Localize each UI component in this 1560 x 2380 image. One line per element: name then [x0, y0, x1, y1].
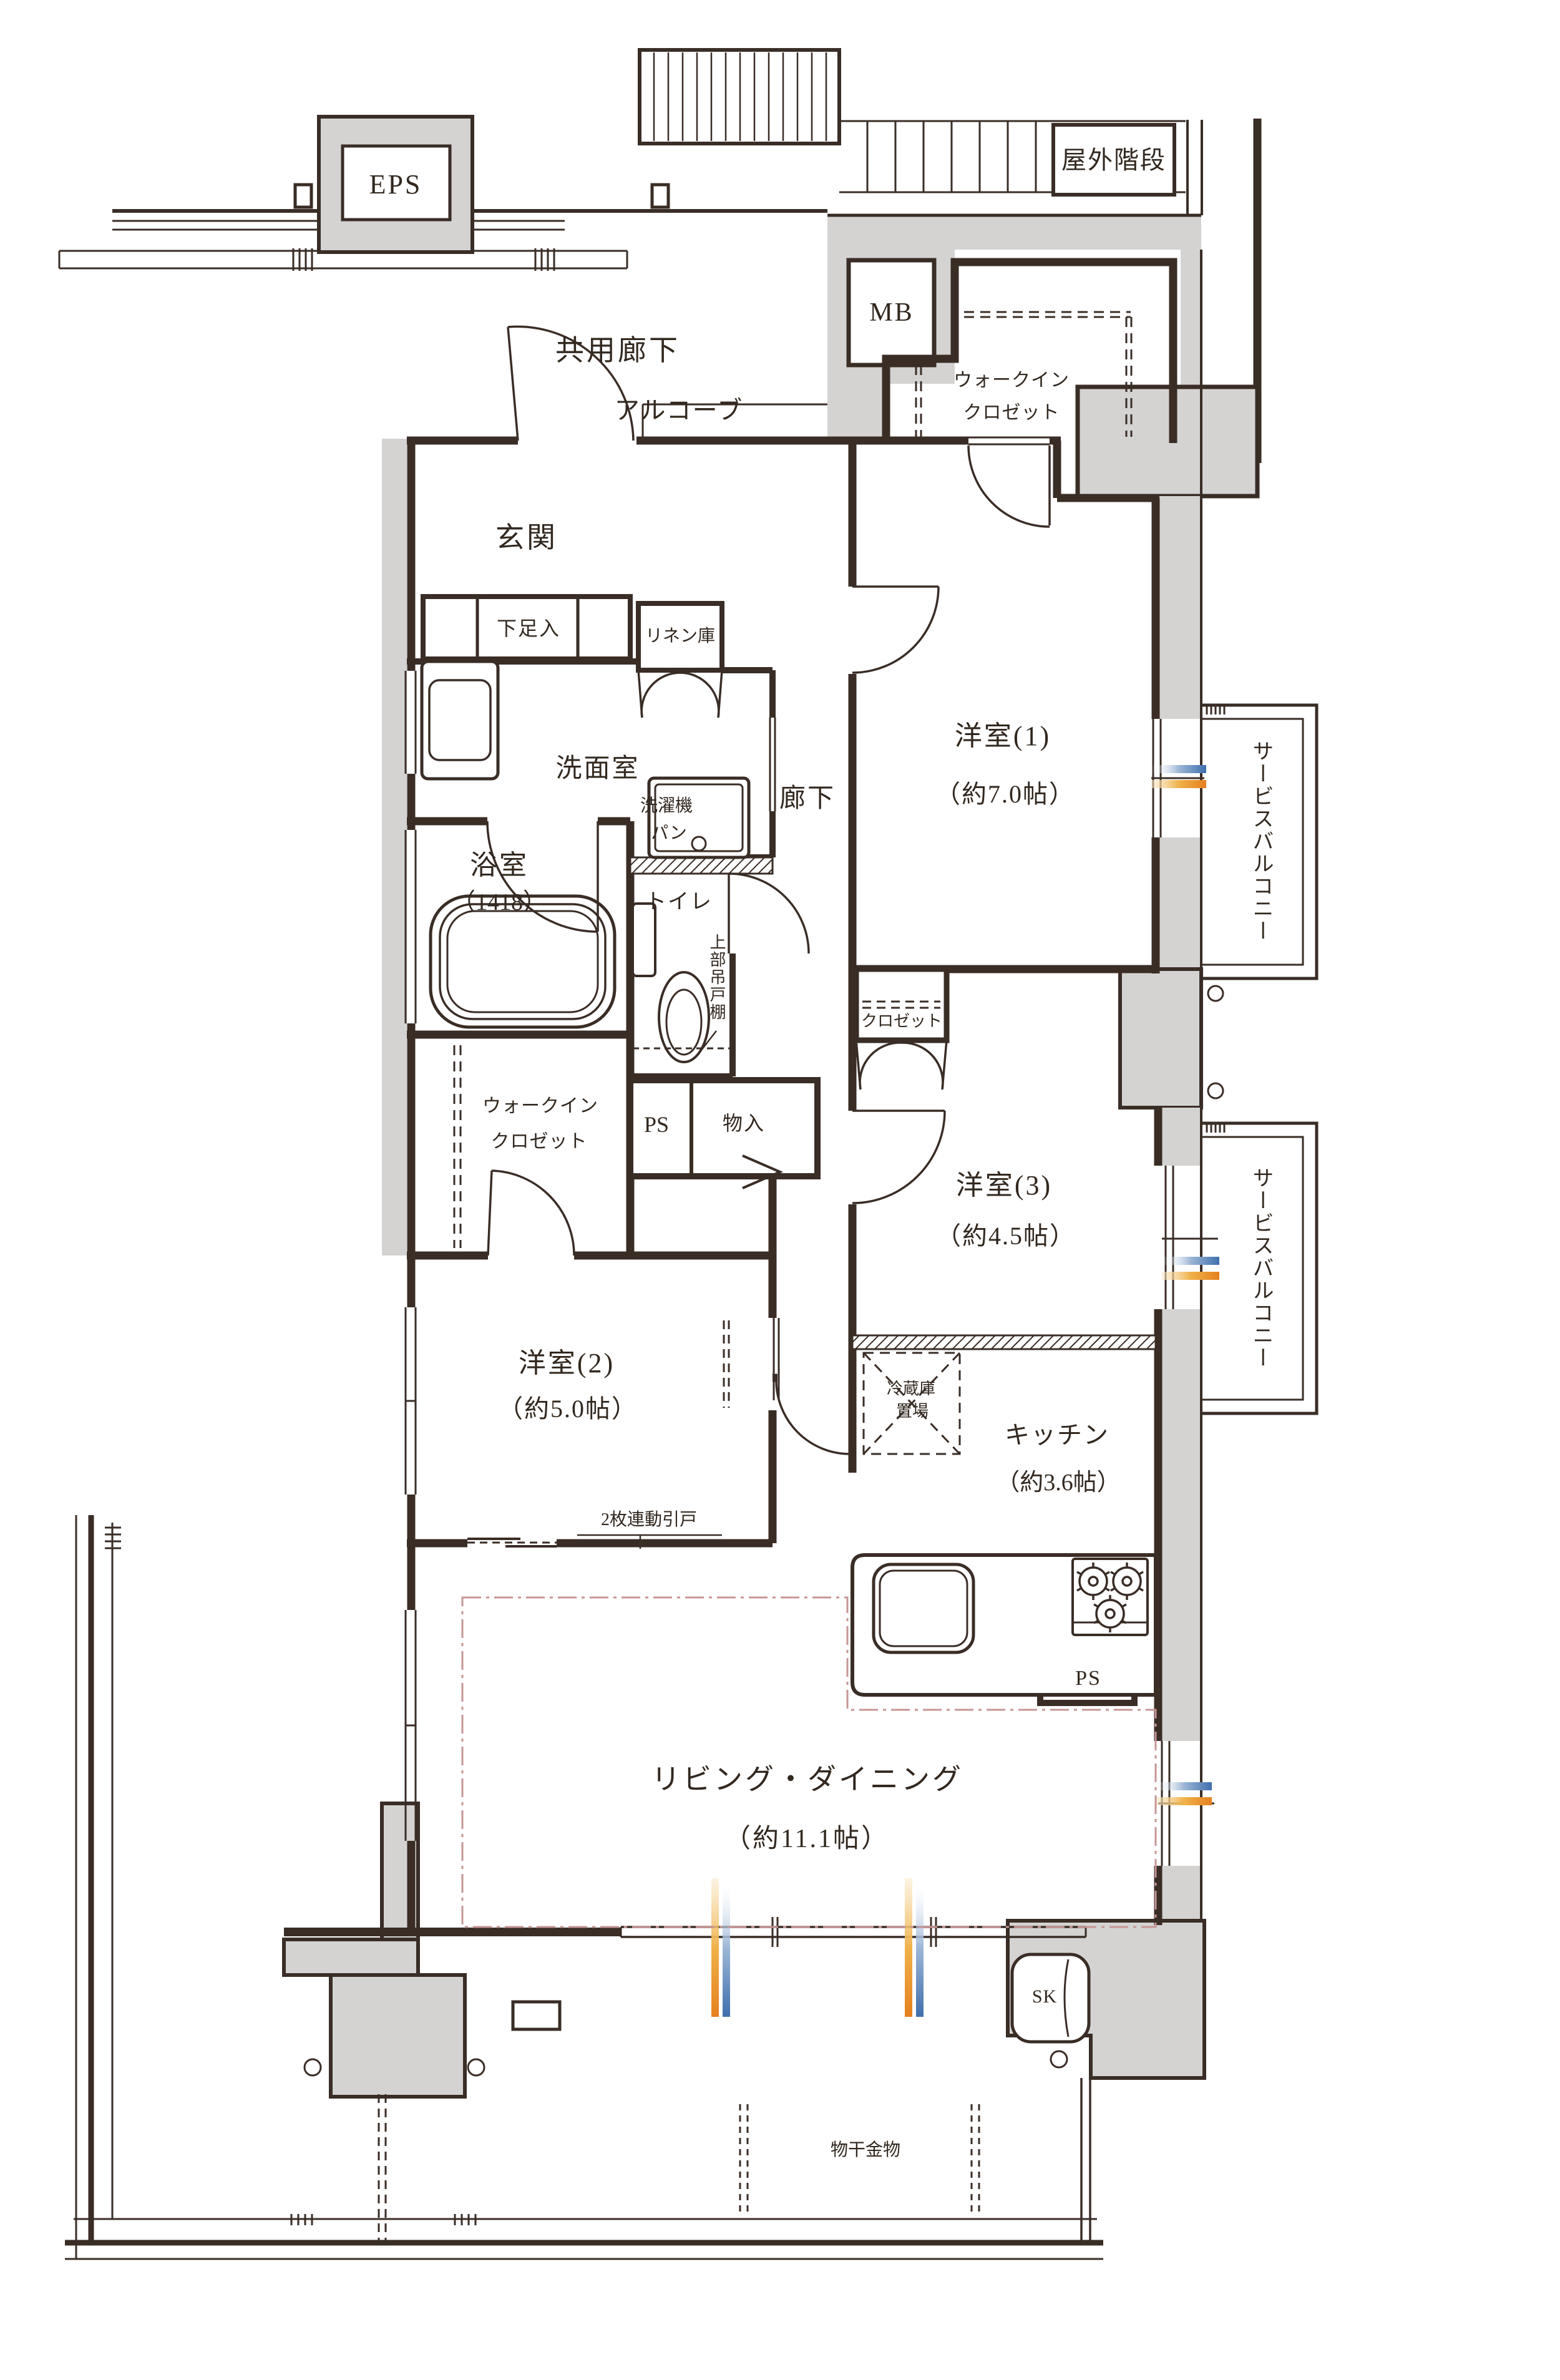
label-storage: 物入 [723, 1113, 765, 1133]
label-living-size: （約11.1帖） [724, 1826, 889, 1852]
linen-doors [638, 670, 722, 718]
label-eps: EPS [369, 171, 422, 198]
label-bath-1: 浴室 [470, 852, 529, 879]
label-bed1-name: 洋室(1) [955, 723, 1051, 750]
label-outdoor-stairs: 屋外階段 [1061, 148, 1166, 173]
hall-ld-door [776, 1380, 850, 1454]
window-ld-right [1156, 1741, 1214, 1866]
bed1-door [852, 587, 938, 673]
balcony-column-gray-2 [284, 1939, 418, 1975]
label-bed2-name: 洋室(2) [519, 1350, 615, 1377]
left-wall-gray [382, 439, 407, 1256]
label-sk: SK [1032, 1987, 1057, 2006]
label-kitchen-name: キッチン [1005, 1423, 1109, 1448]
kitchen-counter [852, 1555, 1156, 1695]
label-bath-2: （1418） [452, 890, 547, 914]
wic-top-door [968, 437, 1050, 527]
balcony-drain-2 [468, 2059, 484, 2075]
label-corridor: 共用廊下 [555, 336, 680, 365]
balcony-column-gray-3 [331, 1975, 465, 2097]
label-wic-left-1: ウォークイン [482, 1097, 598, 1116]
label-wic-top-2: クロゼット [963, 404, 1060, 422]
label-sliding-door: 2枚連動引戸 [601, 1511, 697, 1529]
bed3-door [852, 1111, 945, 1203]
label-ps-2: PS [1075, 1668, 1101, 1689]
label-living-name: リビング・ダイニング [651, 1765, 963, 1794]
stair-hatch-block [640, 50, 839, 144]
laundry-hooks [740, 2104, 979, 2217]
balcony-drain-1 [305, 2059, 321, 2075]
label-closet-bed3: クロゼット [861, 1013, 942, 1030]
drain-2 [1208, 1083, 1223, 1098]
label-upper-cabinet: 上部吊戸棚 [708, 934, 724, 1021]
label-bed2-size: （約5.0帖） [498, 1397, 638, 1422]
label-bed3-name: 洋室(3) [956, 1172, 1052, 1199]
label-washroom: 洗面室 [555, 756, 640, 782]
floor-plan-drawing [0, 0, 1560, 2380]
label-shoe-box: 下足入 [497, 618, 560, 638]
column-marker-left [295, 185, 311, 207]
window-bed1 [1151, 719, 1206, 837]
between-balconies-gray [1120, 969, 1201, 1108]
vanity-sink [422, 661, 498, 779]
window-bath-left [406, 830, 416, 1023]
label-bed3-size: （約4.5帖） [936, 1224, 1076, 1249]
label-wic-left-2: クロゼット [491, 1133, 588, 1151]
window-bed2-left [406, 1307, 416, 1495]
label-bed1-size: （約7.0帖） [935, 782, 1075, 807]
label-service-balcony-2: サービスバルコニー [1250, 1167, 1271, 1369]
label-wic-top-1: ウォークイン [953, 371, 1070, 390]
label-service-balcony-1: サービスバルコニー [1250, 740, 1271, 942]
label-linen: リネン庫 [645, 628, 715, 645]
label-kitchen-size: （約3.6帖） [996, 1471, 1121, 1495]
balcony-equipment-pad [513, 2002, 560, 2029]
bathtub [431, 896, 615, 1027]
washer-pan [649, 778, 749, 857]
drain-1 [1208, 986, 1223, 1001]
label-fridge-2: 置場 [896, 1403, 929, 1420]
window-washroom-left [406, 671, 416, 774]
label-alcove: アルコーブ [615, 398, 743, 423]
label-laundry-hardware: 物干金物 [831, 2142, 900, 2159]
floor-plan: EPS 屋外階段 MB 共用廊下 アルコーブ ウォークイン クロゼット 玄関 下… [0, 0, 1560, 2380]
stove [1073, 1559, 1148, 1635]
label-hallway: 廊下 [779, 786, 836, 812]
wic-left-door [488, 1171, 574, 1256]
window-bed3 [1162, 1166, 1219, 1309]
toilet-door [729, 874, 809, 953]
wic-corner-gray [1078, 387, 1257, 496]
label-genkan: 玄関 [495, 524, 558, 552]
bed2-pocket-door [724, 1318, 779, 1408]
label-washer-1: 洗濯機 [640, 797, 693, 815]
column-marker-right [652, 185, 668, 207]
label-washer-2: パン [651, 825, 686, 842]
washroom-pocket-door [770, 718, 775, 811]
label-fridge-1: 冷蔵庫 [887, 1381, 935, 1397]
label-toilet: トイレ [645, 892, 713, 913]
balcony-drain-3 [1051, 2051, 1067, 2067]
label-ps-1: PS [644, 1113, 669, 1136]
label-mb: MB [869, 300, 914, 326]
closet-bed3-doors [856, 1040, 947, 1090]
